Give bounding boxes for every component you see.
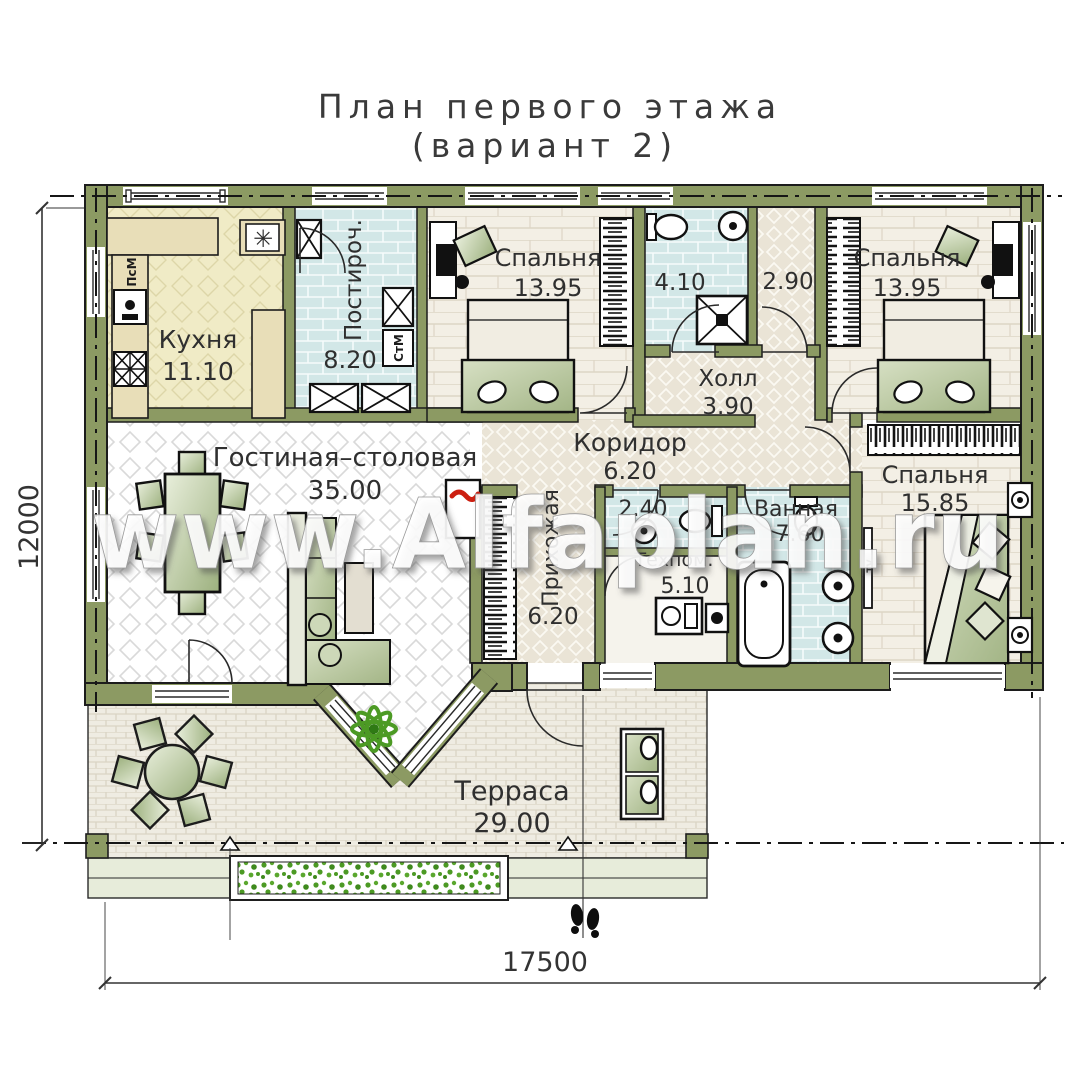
sink-icon xyxy=(823,623,853,653)
sink-icon xyxy=(719,212,747,240)
svg-text:СтМ: СтМ xyxy=(392,334,406,362)
label-terrace-area: 29.00 xyxy=(473,808,550,839)
label-bedroom1-area: 13.95 xyxy=(514,274,583,302)
shower-icon xyxy=(697,296,747,344)
nightstand-icon xyxy=(1008,483,1032,517)
dishwasher-label: ПсМ xyxy=(125,257,139,286)
label-bedroom2-name: Спальня xyxy=(854,244,961,272)
kitchen-sink-icon xyxy=(114,290,146,324)
terrace-bench xyxy=(621,729,663,819)
wardrobe-icon xyxy=(600,218,633,346)
label-bedroom1-name: Спальня xyxy=(495,244,602,272)
dimension-left-value: 12000 xyxy=(14,484,45,570)
plan-title-line2: (вариант 2) xyxy=(412,126,678,165)
label-living-name: Гостиная–столовая xyxy=(213,443,477,473)
label-bathroom1-area: 4.10 xyxy=(654,270,705,296)
hob-icon: ✳ xyxy=(253,225,273,253)
label-laundry-name: Постироч. xyxy=(341,219,367,341)
floor-plan-canvas: План первого этажа (вариант 2) xyxy=(0,0,1080,1080)
boiler-icon xyxy=(656,598,728,634)
label-kitchen-area: 11.10 xyxy=(162,357,234,386)
wardrobe-icon xyxy=(827,218,860,346)
label-hall-area: 3.90 xyxy=(702,394,753,420)
label-bedroom2-area: 13.95 xyxy=(873,274,942,302)
label-corridor-name: Коридор xyxy=(573,428,687,457)
label-hall-name: Холл xyxy=(698,366,757,392)
label-closet-area: 2.90 xyxy=(762,269,813,295)
wardrobe-icon xyxy=(868,425,1020,455)
terrace-post-left xyxy=(86,834,108,858)
label-terrace-name: Терраса xyxy=(453,776,569,807)
washer-icon: СтМ xyxy=(383,330,413,366)
nightstand-icon xyxy=(1008,618,1032,652)
label-laundry-area: 8.20 xyxy=(323,346,376,374)
plan-title-line1: План первого этажа xyxy=(318,87,782,126)
bed-icon xyxy=(878,300,990,412)
footprints-icon xyxy=(570,903,601,938)
plan-title: План первого этажа (вариант 2) xyxy=(318,87,782,165)
bed-icon xyxy=(462,300,574,412)
stove-icon xyxy=(114,352,146,386)
cabinet-icon xyxy=(383,288,413,326)
toilet-icon xyxy=(647,214,687,240)
terrace-post-right xyxy=(686,834,708,858)
label-kitchen-name: Кухня xyxy=(159,325,238,354)
dimension-bottom-value: 17500 xyxy=(502,947,588,978)
watermark-text: www.Alfaplan.ru xyxy=(91,478,1006,591)
label-entry-area: 6.20 xyxy=(527,604,578,630)
planter-box xyxy=(230,856,508,900)
floor-plan-page: План первого этажа (вариант 2) xyxy=(0,0,1080,1080)
